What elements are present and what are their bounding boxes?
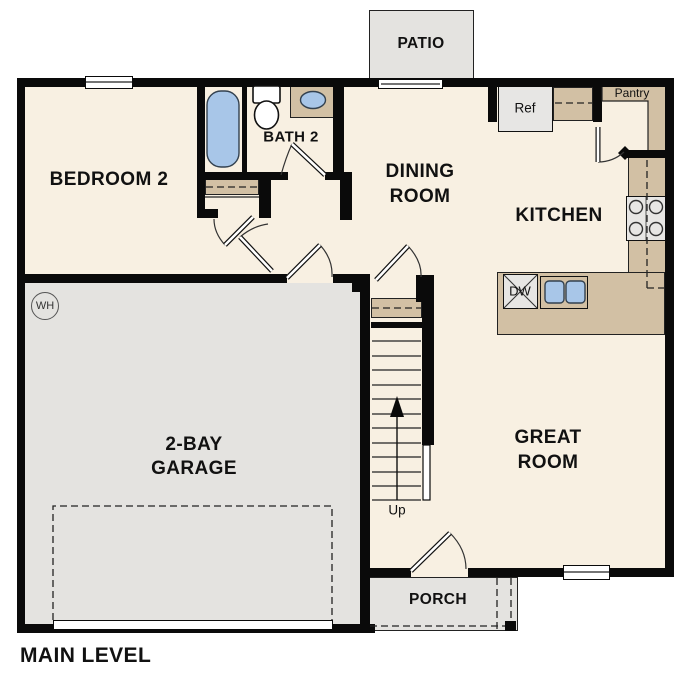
porch-label: PORCH bbox=[409, 591, 467, 609]
garage-door-dashed-outline bbox=[53, 506, 332, 620]
great-label-line1: GREAT bbox=[514, 425, 581, 450]
detail-overlay bbox=[0, 0, 687, 687]
floor-plan: PATIO BEDROOM 2 BATH 2 DINING ROOM KITCH… bbox=[0, 0, 687, 687]
stairs-up-label: Up bbox=[388, 503, 405, 518]
garage-label: 2-BAY GARAGE bbox=[151, 433, 237, 481]
dw-label: DW bbox=[509, 284, 531, 299]
dining-room-label: DINING ROOM bbox=[386, 159, 455, 209]
great-label-line2: ROOM bbox=[514, 450, 581, 475]
patio-label: PATIO bbox=[397, 35, 444, 53]
great-room-label: GREAT ROOM bbox=[514, 425, 581, 475]
dining-label-line1: DINING bbox=[386, 159, 455, 184]
bedroom2-label: BEDROOM 2 bbox=[50, 169, 169, 191]
pantry-label: Pantry bbox=[615, 86, 650, 100]
bath2-door bbox=[281, 144, 325, 175]
kitchen-label: KITCHEN bbox=[515, 205, 602, 227]
pantry-corner-post bbox=[618, 146, 632, 160]
stair-closet-door bbox=[376, 246, 421, 280]
ref-label: Ref bbox=[514, 101, 535, 116]
garage-entry-door bbox=[287, 245, 332, 278]
garage-label-line1: 2-BAY bbox=[151, 433, 237, 457]
bath2-label: BATH 2 bbox=[263, 129, 318, 146]
dining-label-line2: ROOM bbox=[386, 184, 455, 209]
vanity-sink bbox=[301, 92, 326, 109]
water-heater: WH bbox=[31, 292, 59, 320]
plan-title: MAIN LEVEL bbox=[20, 644, 151, 668]
kitchen-sink-basins bbox=[545, 281, 585, 303]
front-door bbox=[411, 533, 466, 571]
bedroom2-door bbox=[240, 224, 272, 271]
staircase bbox=[372, 341, 430, 500]
wh-label: WH bbox=[36, 300, 54, 312]
pantry-door bbox=[598, 127, 624, 162]
stair-railing bbox=[423, 445, 430, 500]
toilet bbox=[253, 86, 280, 129]
garage-label-line2: GARAGE bbox=[151, 457, 237, 481]
bathtub bbox=[207, 91, 239, 167]
bedroom-closet-door bbox=[214, 217, 253, 245]
range-burners bbox=[630, 197, 663, 240]
